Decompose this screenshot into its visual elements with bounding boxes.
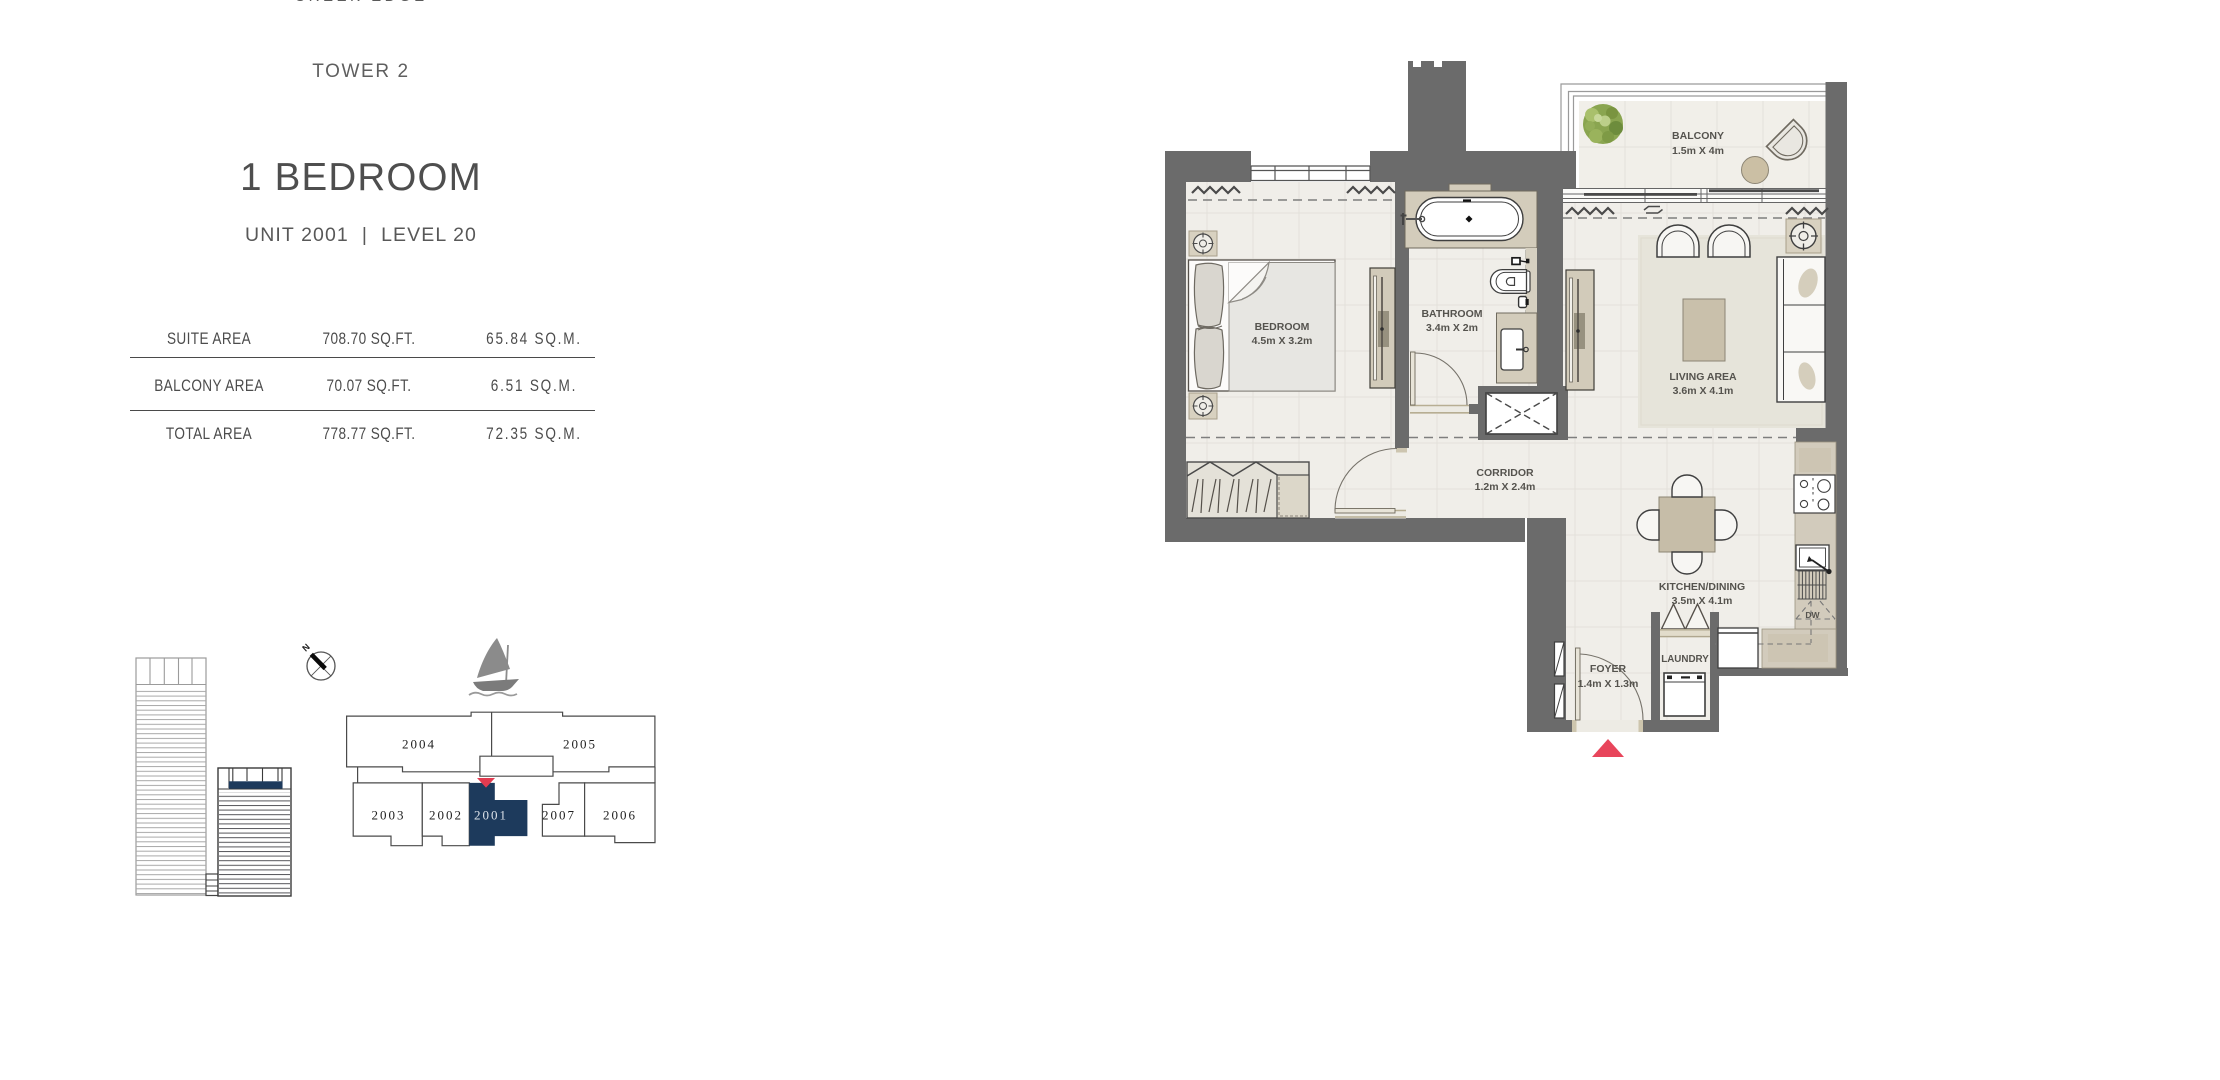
svg-text:2007: 2007 — [542, 808, 576, 823]
svg-text:FOYER: FOYER — [1590, 663, 1627, 675]
svg-text:3.5m X 4.1m: 3.5m X 4.1m — [1672, 595, 1733, 607]
svg-text:1.4m X 1.3m: 1.4m X 1.3m — [1578, 678, 1639, 690]
svg-text:2003: 2003 — [372, 808, 406, 823]
svg-text:2001: 2001 — [474, 808, 508, 823]
svg-text:4.5m X 3.2m: 4.5m X 3.2m — [1252, 335, 1313, 347]
svg-text:BEDROOM: BEDROOM — [1255, 321, 1310, 333]
svg-text:KITCHEN/DINING: KITCHEN/DINING — [1659, 581, 1745, 593]
svg-text:BALCONY: BALCONY — [1672, 130, 1724, 142]
svg-text:1.5m X 4m: 1.5m X 4m — [1672, 145, 1724, 157]
svg-text:2002: 2002 — [429, 808, 463, 823]
svg-text:CORRIDOR: CORRIDOR — [1476, 467, 1534, 479]
svg-text:3.6m X 4.1m: 3.6m X 4.1m — [1673, 385, 1734, 397]
svg-text:2004: 2004 — [402, 737, 436, 752]
svg-text:3.4m X 2m: 3.4m X 2m — [1426, 322, 1478, 334]
svg-text:LIVING AREA: LIVING AREA — [1669, 371, 1737, 383]
svg-text:DW: DW — [1805, 610, 1820, 620]
svg-text:N: N — [300, 642, 312, 654]
svg-text:LAUNDRY: LAUNDRY — [1661, 654, 1709, 665]
svg-text:BATHROOM: BATHROOM — [1421, 308, 1482, 320]
svg-text:2006: 2006 — [603, 808, 637, 823]
svg-text:1.2m X 2.4m: 1.2m X 2.4m — [1475, 481, 1536, 493]
svg-text:2005: 2005 — [563, 737, 597, 752]
